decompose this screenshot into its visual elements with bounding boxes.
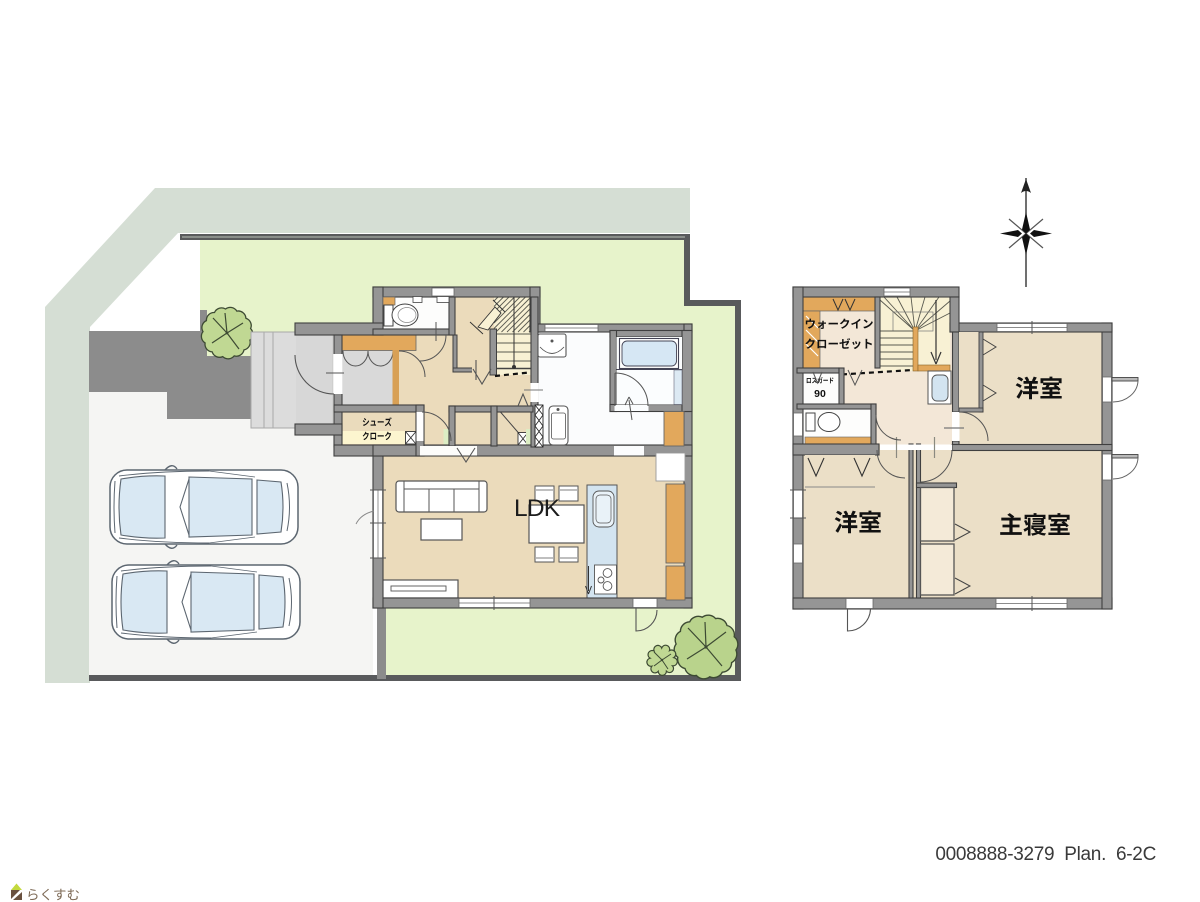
svg-text:90: 90 <box>814 388 826 400</box>
svg-text:0008888-3279 Plan. 6-2C: 0008888-3279 Plan. 6-2C <box>935 844 1156 865</box>
svg-text:LDK: LDK <box>514 495 561 522</box>
